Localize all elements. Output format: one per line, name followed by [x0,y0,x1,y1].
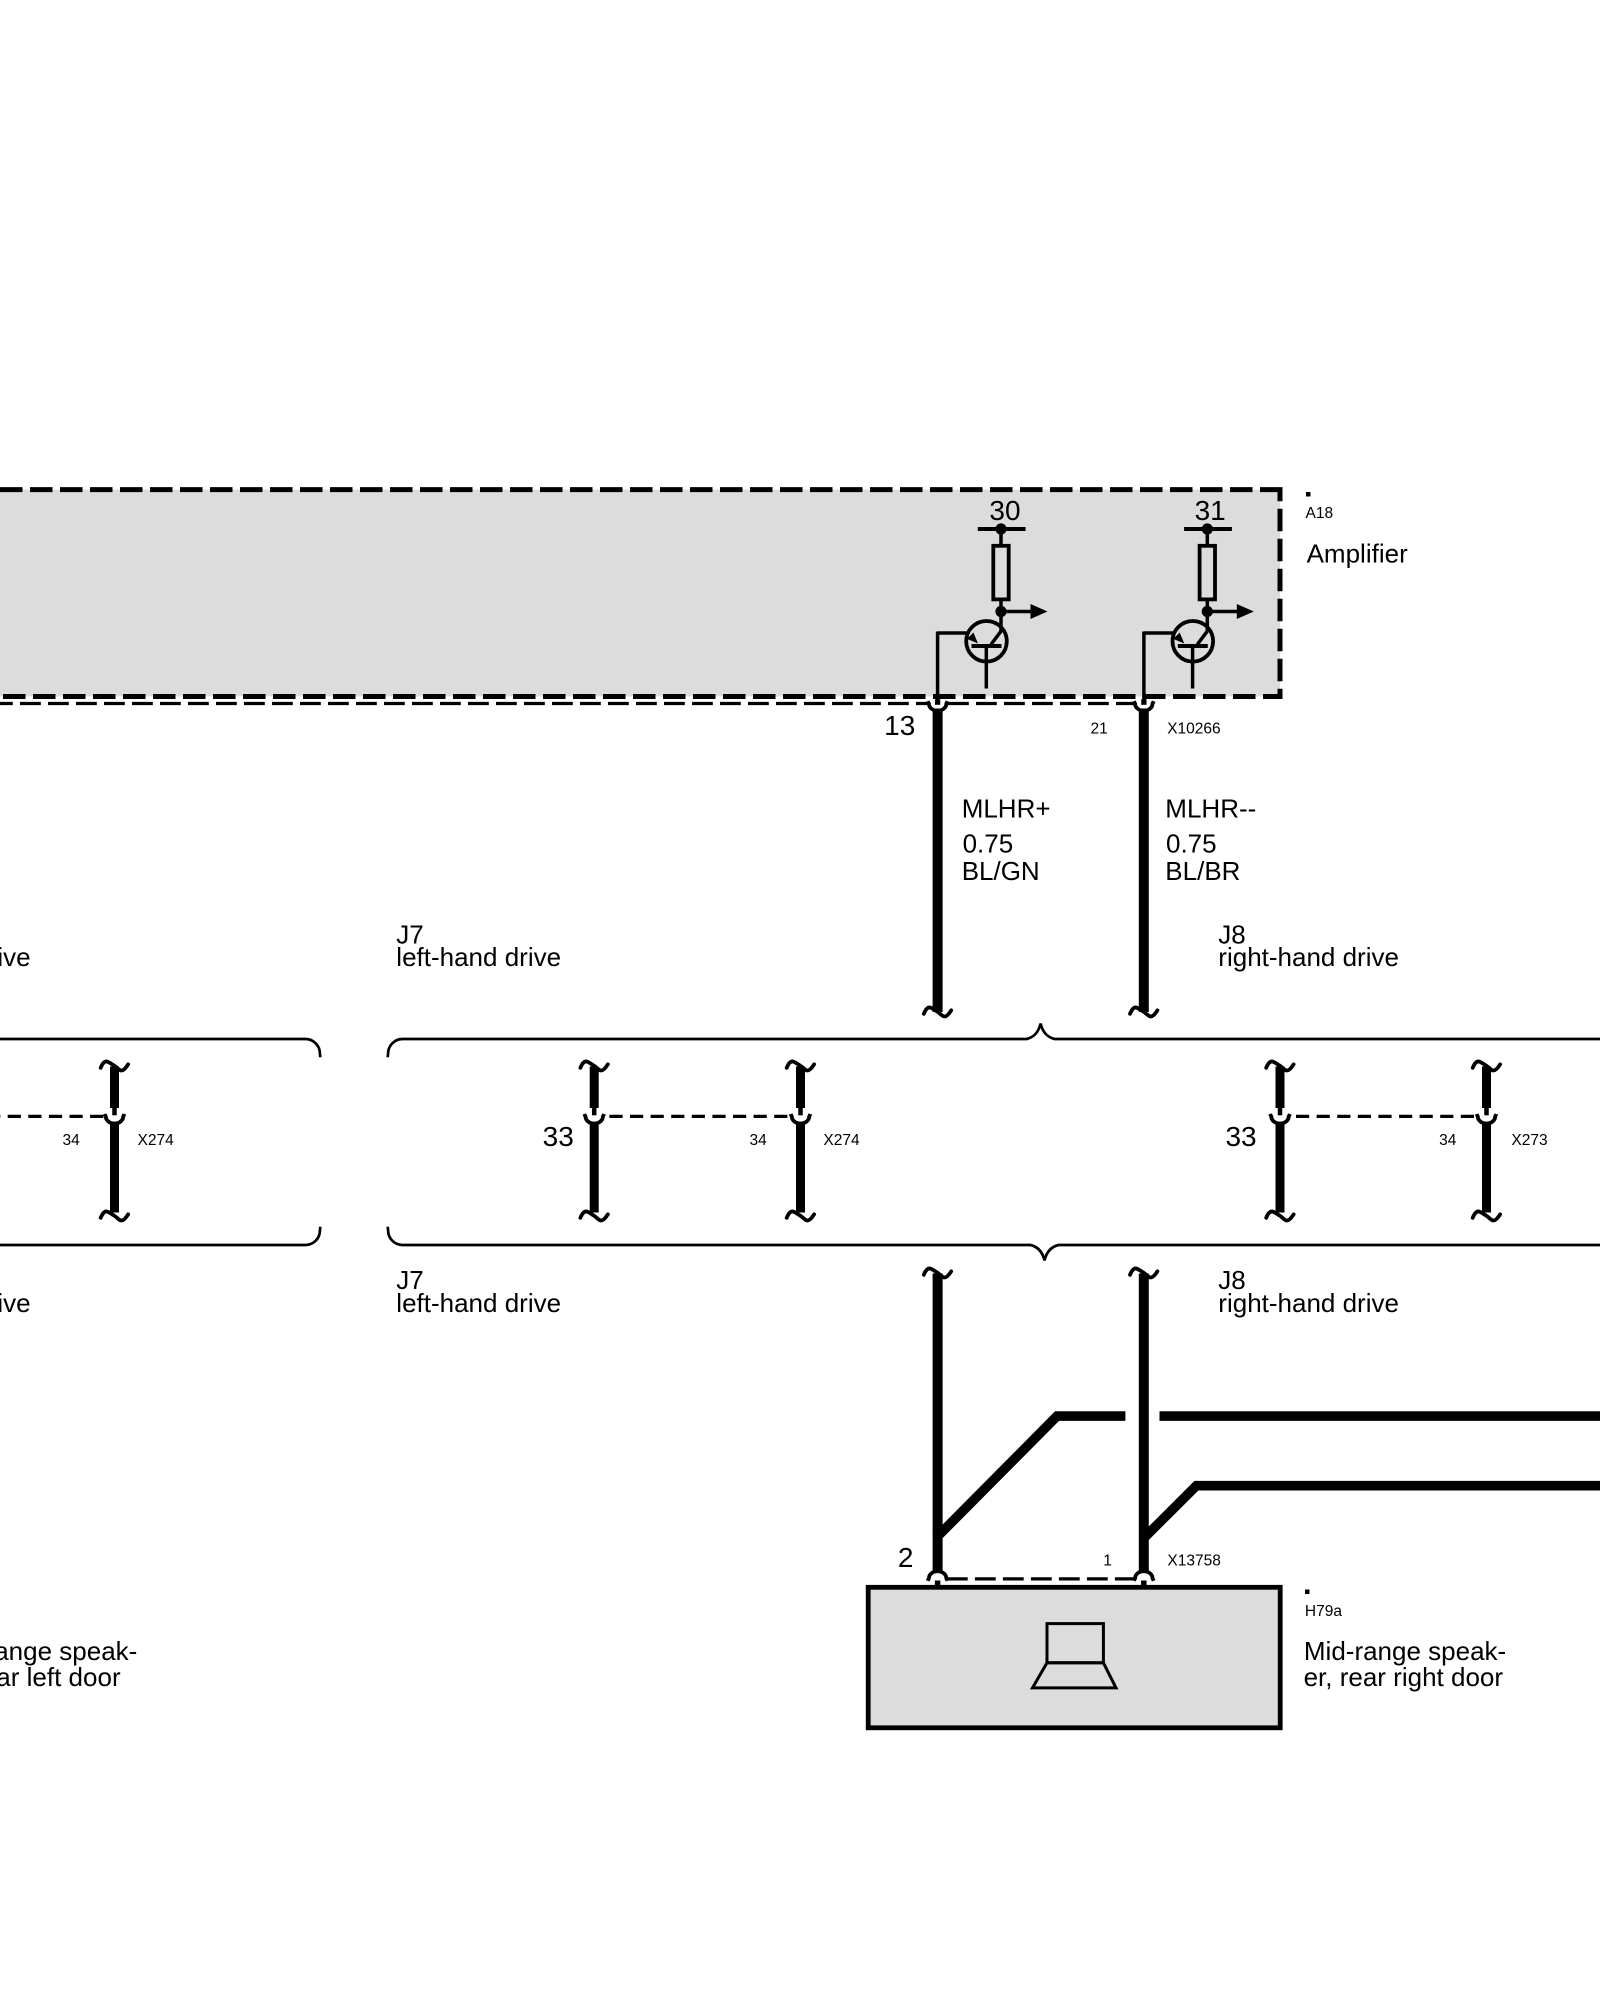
svg-text:X273: X273 [1511,1132,1547,1149]
svg-text:X13758: X13758 [1167,1553,1220,1570]
svg-text:er, rear right door: er, rear right door [1304,1662,1504,1692]
svg-text:0.75: 0.75 [1166,828,1217,858]
svg-text:MLHR+: MLHR+ [962,793,1051,823]
svg-text:X10266: X10266 [1167,721,1220,738]
svg-text:left-hand drive: left-hand drive [396,1288,561,1318]
svg-text:2: 2 [898,1542,914,1573]
svg-text:1: 1 [1103,1553,1112,1570]
svg-text:30: 30 [989,495,1020,526]
svg-text:BL/GN: BL/GN [962,856,1040,886]
svg-text:33: 33 [1225,1121,1256,1152]
svg-text:right-hand drive: right-hand drive [0,942,31,972]
svg-text:31: 31 [1195,495,1226,526]
svg-text:34: 34 [63,1132,81,1149]
svg-text:13: 13 [884,710,915,741]
svg-text:left-hand drive: left-hand drive [396,942,561,972]
svg-text:21: 21 [1091,721,1108,738]
svg-text:Amplifier: Amplifier [1307,538,1408,568]
svg-text:right-hand drive: right-hand drive [0,1288,31,1318]
svg-text:X274: X274 [823,1132,860,1149]
svg-text:right-hand drive: right-hand drive [1218,942,1399,972]
svg-text:A18: A18 [1306,505,1334,522]
svg-text:H79a: H79a [1305,1603,1342,1620]
svg-text:0.75: 0.75 [963,828,1014,858]
svg-text:MLHR--: MLHR-- [1165,793,1256,823]
svg-text:right-hand drive: right-hand drive [1218,1288,1399,1318]
svg-text:34: 34 [750,1132,768,1149]
svg-text:34: 34 [1439,1132,1457,1149]
svg-text:33: 33 [543,1121,574,1152]
svg-text:er, rear left door: er, rear left door [0,1662,121,1692]
svg-text:BL/BR: BL/BR [1165,856,1240,886]
svg-text:X274: X274 [138,1132,175,1149]
